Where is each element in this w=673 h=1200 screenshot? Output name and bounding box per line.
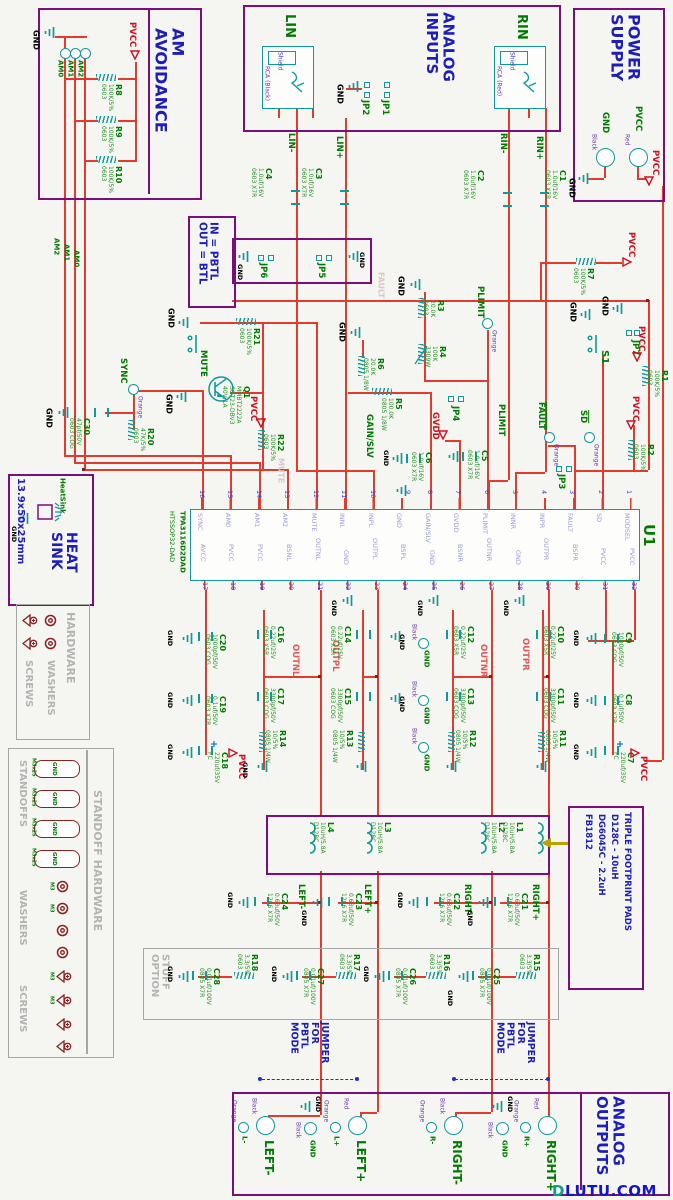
gnd-symbol: [586, 694, 597, 707]
gnd-label: GND: [241, 762, 248, 778]
gnd-symbol: [612, 302, 623, 315]
gnd-symbol: [536, 760, 547, 773]
screw-icon: [22, 614, 38, 627]
component-label: R1410/5% 0805 1/4W: [272, 730, 287, 763]
gnd-symbol: [58, 406, 69, 419]
gnd-label: GND: [358, 252, 365, 268]
jp3-label: JP3: [556, 474, 565, 489]
m3-label: M3: [48, 972, 53, 980]
capacitor-symbol: [291, 190, 300, 205]
jp2-label: JP2: [360, 100, 369, 115]
gnd-label: GND: [396, 892, 403, 908]
jumper-dot: [452, 1077, 456, 1081]
gnd-jack[interactable]: [496, 1122, 509, 1135]
gvdd-arrow: [438, 430, 448, 440]
component-label: R153.3/5% 0603: [526, 954, 541, 975]
gnd-symbol: [428, 594, 439, 607]
net-left-p: LEFT+: [362, 884, 371, 914]
u1-pin-name: AM1: [253, 513, 260, 527]
ghost-fault: FAULT: [376, 272, 385, 298]
gnd-symbol: [578, 172, 589, 185]
gnd-label: GND: [446, 990, 453, 1006]
u1-pin-number: 29: [544, 582, 551, 590]
u1-pin-name: GND: [395, 513, 402, 528]
orange-note: Orange: [512, 1100, 518, 1122]
net-rin-p: RIN+: [534, 136, 543, 160]
component-label: C160.22uf/25V 0603 X5R: [270, 626, 285, 659]
net-pvcc: PVCC: [626, 232, 635, 257]
m3x25-label: M3x25: [30, 818, 35, 837]
gnd-testpoint[interactable]: [418, 695, 429, 706]
resistor-symbol: [372, 388, 392, 395]
l-minus-testpoint[interactable]: [238, 1122, 249, 1133]
r-minus-testpoint[interactable]: [426, 1122, 437, 1133]
orange-note: Orange: [322, 1100, 328, 1122]
net-gainslv: GAIN/SLV: [364, 414, 373, 458]
component-label: R8100K/5% 0603: [108, 84, 123, 111]
red-note: Red: [532, 1098, 538, 1109]
analog-outputs-title: ANALOG OUTPUTS: [594, 1096, 626, 1175]
jp7-pin[interactable]: [626, 330, 632, 336]
u1-pin-name: GND: [514, 550, 521, 565]
am2-pin[interactable]: [80, 48, 91, 59]
gnd-jack[interactable]: [304, 1122, 317, 1135]
u1-pin-number: 18: [229, 582, 236, 590]
u1-pin-name: OUTNL: [314, 538, 321, 560]
gnd-jack-label: GND: [600, 112, 609, 133]
gnd-symbol: [410, 278, 421, 291]
component-label: C220.68uf/50V 1206 X7R: [446, 893, 461, 926]
net-am1: AM1: [66, 60, 74, 77]
jp6-label: JP6: [258, 263, 267, 278]
u1-pin-name: GAIN/SLV: [424, 513, 431, 543]
watermark-rest: LUTU.COM: [565, 1182, 657, 1200]
u1-pin-name: AM0: [224, 513, 231, 527]
schematic-canvas: AM AVOIDANCE GND AM0 AM1 AM2 PVCC R8100K…: [0, 0, 673, 1200]
gnd-label: GND: [398, 634, 405, 650]
gnd-label: GND: [396, 276, 405, 296]
gnd-label: GND: [572, 692, 579, 708]
screw-icon: [56, 994, 72, 1007]
u1-pin-number: 26: [458, 582, 465, 590]
washers-label: WASHERS: [44, 660, 55, 716]
u1-pin-name: OUTNR: [485, 538, 492, 561]
jp5-pin[interactable]: [316, 255, 322, 261]
washer-icon: [56, 902, 69, 915]
sd-testpoint[interactable]: [584, 432, 595, 443]
u1-pin-name: INNR: [509, 513, 516, 529]
jp2-pin[interactable]: [364, 82, 370, 88]
component-label: C173300pf/50V 0603 COG: [270, 688, 285, 723]
gnd-label: GND: [330, 600, 337, 616]
gnd-banana-jack[interactable]: [596, 148, 615, 167]
gnd-symbol: [182, 746, 193, 759]
component-label: C51.0uf/16V 0603 X7R: [474, 450, 489, 479]
component-label: R9100K/5% 0603: [108, 126, 123, 153]
black-note: Black: [590, 134, 596, 150]
gnd-symbol: [178, 316, 189, 329]
component-label: R21100K/5% 0603: [246, 328, 261, 355]
net-am2: AM2: [52, 238, 60, 255]
gnd-label: GND: [500, 1140, 508, 1157]
pvcc-arrow: [644, 176, 654, 186]
gnd-label: GND: [31, 30, 40, 50]
gnd-symbol: [350, 326, 361, 339]
screw-icon: [56, 1018, 72, 1031]
jp6-pin[interactable]: [258, 255, 264, 261]
gnd-symbol: [458, 970, 469, 983]
u1-pin-number: 30: [573, 582, 580, 590]
black-note: Black: [410, 681, 416, 697]
washer-icon: [56, 880, 69, 893]
gnd-symbol: [238, 896, 249, 909]
gnd-label: GND: [568, 302, 577, 322]
gnd-label: GND: [567, 178, 576, 198]
gnd-label: GND: [382, 450, 389, 466]
component-label: C240.68uf/50V 1206 X7R: [274, 893, 289, 926]
tfp-line4: FB1812: [583, 814, 592, 850]
u1-pin-number: 32: [630, 582, 637, 590]
component-label: R163.3/5% 0603: [436, 954, 451, 975]
net-r-plus: R+: [522, 1136, 530, 1147]
u1-part: TPA3116D2DAD: [178, 511, 186, 573]
gnd-label: GND: [466, 910, 473, 926]
sync-testpoint[interactable]: [128, 384, 139, 395]
u1-pin-name: BSPR: [571, 544, 578, 561]
net-outpr: OUTPR: [520, 638, 529, 671]
u1-pin-number: 7: [454, 490, 461, 494]
ghost-mute: MUTE: [276, 458, 285, 483]
screw-icon: [22, 637, 38, 650]
resistor-symbol: [96, 156, 116, 163]
net-pvcc: PVCC: [636, 326, 645, 351]
rca-contact-icon: [288, 70, 306, 96]
jumper-dot: [546, 1077, 550, 1081]
gnd-symbol: [408, 896, 419, 909]
net-pvcc: PVCC: [650, 150, 659, 175]
component-label: R10100K/5% 0603: [108, 166, 123, 193]
jumper-dot: [258, 1077, 262, 1081]
r-plus-testpoint[interactable]: [520, 1122, 531, 1133]
u1-pin-name: AVCC: [199, 544, 206, 562]
screws-label: SCREWS: [22, 660, 33, 707]
rca-black-label: RCA (Black): [263, 66, 269, 101]
polarity-plus: [616, 740, 624, 748]
u1-pin-name: GND: [428, 550, 435, 565]
gnd-label: GND: [226, 892, 233, 908]
gnd-label: GND: [236, 264, 243, 280]
gnd-label: GND: [270, 966, 277, 982]
u1-pin-name: MODSEL: [623, 513, 630, 541]
u1-pin-name: FAULT: [566, 513, 573, 532]
u1-pin-name: INPL: [367, 513, 374, 527]
u1-pin-number: 17: [201, 582, 208, 590]
red-note: Red: [623, 134, 629, 145]
gnd-symbol: [176, 390, 187, 403]
component-label: R320.0K 0603: [430, 300, 445, 317]
component-label: C190.1uf/50V 0603 X7R: [212, 696, 227, 725]
net-lin-n: LIN-: [286, 133, 295, 152]
component-label: C133300pf/50V 0603 COG: [460, 688, 475, 723]
component-label: C210.68uf/50V 1206 X7R: [514, 893, 529, 926]
orange-note: Orange: [230, 1100, 236, 1122]
u1-pin-name: GND: [342, 550, 349, 565]
shield-label: Shield: [276, 52, 282, 70]
pvcc-jack-label: PVCC: [633, 106, 642, 131]
gnd-symbol: [446, 760, 457, 773]
u1-pin-name: GVDD: [452, 513, 459, 533]
u1-pin-number: 31: [601, 582, 608, 590]
gnd-label: GND: [164, 394, 173, 414]
component-label: R5100.0K 0805 1/8W: [388, 398, 403, 431]
pbtl-jumper-wire: [262, 1079, 358, 1080]
gnd-symbol: [178, 970, 189, 983]
u1-pin-number: 9: [404, 490, 411, 494]
gnd-symbol: [580, 308, 591, 321]
jumper-dot: [355, 1077, 359, 1081]
jp5-pin[interactable]: [326, 255, 332, 261]
net-plimit: PLIMIT: [475, 286, 484, 318]
standoff-icon: [34, 820, 80, 838]
u1-pin-number: 15: [226, 490, 233, 498]
component-label: R22100K/5% 0603: [270, 434, 285, 461]
pbtl-jumper-note: JUMPER FOR PBTL MODE: [494, 1022, 535, 1063]
washer-icon: [44, 637, 57, 650]
u1-pin-name: BSPL: [399, 544, 406, 560]
component-label: R2047K/5% 0603: [140, 428, 155, 451]
gnd-symbol: [492, 1100, 503, 1113]
gnd-label: GND: [50, 792, 56, 806]
washer-icon: [56, 924, 69, 937]
u1-ref: U1: [641, 524, 657, 547]
jp4-pin[interactable]: [458, 396, 464, 402]
u1-pin-number: 3: [568, 490, 575, 494]
pvcc-arrow: [622, 257, 632, 267]
u1-pin-number: 6: [483, 490, 490, 494]
u1-pin-number: 21: [316, 582, 323, 590]
jp1-pin[interactable]: [384, 82, 390, 88]
component-label: R1110/5% 0805 1/4W: [552, 730, 567, 763]
jp1-label: JP1: [380, 100, 389, 115]
jp4-label: JP4: [450, 406, 459, 421]
gnd-testpoint[interactable]: [418, 742, 429, 753]
jp6-pin[interactable]: [268, 255, 274, 261]
component-label: R1100K/5% 0603: [654, 370, 669, 397]
jp4-pin[interactable]: [448, 396, 454, 402]
gnd-symbol: [238, 250, 249, 263]
u1-pin-number: 19: [258, 582, 265, 590]
gnd-label: GND: [362, 966, 369, 982]
screws-label: SCREWS: [16, 985, 27, 1032]
net-fault: FAULT: [536, 402, 545, 430]
capacitor-symbol: [340, 190, 349, 205]
right-minus-label: RIGHT-: [450, 1140, 463, 1185]
u1-pin-name: MUTE: [310, 513, 317, 531]
u1-pin-number: 20: [287, 582, 294, 590]
gnd-symbol: [356, 760, 367, 773]
jp3-pin[interactable]: [556, 466, 562, 472]
m3x25-label: M3x25: [30, 758, 35, 777]
gnd-label: GND: [422, 754, 430, 771]
u1-pin-number: 8: [426, 490, 433, 494]
resistor-symbol: [96, 116, 116, 123]
component-label: C18220uf/35V FC: [214, 752, 229, 783]
u1-pin-name: PVCC: [227, 544, 234, 561]
component-label: C260.01uf/100V 0805 X7R: [402, 968, 417, 1005]
u1-pin-number: 12: [312, 490, 319, 498]
heatsink-size: 13.9x50x25mm: [14, 478, 25, 564]
triple-footprint-block: [568, 806, 644, 990]
m3-label: M3: [48, 904, 53, 912]
u1-pin-number: 10: [369, 490, 376, 498]
m3-label: M3: [48, 996, 53, 1004]
mute-button-label: MUTE: [198, 350, 207, 377]
right-plus-jack[interactable]: [538, 1116, 557, 1135]
u1-pin-number: 13: [283, 490, 290, 498]
u1-package: HTSSOP32-DAD: [168, 511, 175, 562]
rca-red-label: RCA (Red): [495, 66, 501, 96]
pbtl-jumper-wire: [455, 1079, 548, 1080]
net-pvcc: PVCC: [638, 756, 647, 781]
u1-pin-name: OUTPR: [542, 538, 549, 560]
gnd-label: GND: [44, 408, 53, 428]
left-plus-jack[interactable]: [348, 1116, 367, 1135]
gnd-label: GND: [50, 852, 56, 866]
component-label: R173.3/5% 0603: [346, 954, 361, 975]
component-label: C11.0uf/16V 0603 X7R: [552, 170, 567, 199]
net-pvcc: PVCC: [127, 22, 136, 47]
component-label: C80.1uf/50V 0603 X7R: [618, 694, 633, 723]
net-left-n: LEFT-: [296, 884, 305, 909]
orange-note: Orange: [136, 396, 142, 418]
gnd-symbol: [448, 450, 459, 463]
washer-icon: [56, 946, 69, 959]
fault-testpoint[interactable]: [544, 432, 555, 443]
net-right-p: RIGHT+: [530, 884, 539, 921]
component-label: C280.01uf/100V 0805 X7R: [206, 968, 221, 1005]
net-rin-n: RIN-: [498, 133, 507, 153]
capacitor-symbol: [503, 192, 512, 207]
left-minus-jack[interactable]: [256, 1116, 275, 1135]
u1-pin-name: PVCC: [599, 548, 606, 565]
gnd-label: GND: [166, 966, 173, 982]
component-label: R183.3/5% 0603: [244, 954, 259, 975]
pvcc-banana-jack[interactable]: [629, 148, 648, 167]
am-avoidance-title: AM AVOIDANCE: [152, 28, 187, 133]
tfp-line1: TRIPLE FOOTPRINT PADS: [622, 812, 631, 931]
orange-note: Orange: [552, 444, 558, 466]
plimit-testpoint[interactable]: [482, 318, 493, 329]
resistor-symbol: [358, 732, 365, 752]
u1-pin-name: INNL: [338, 513, 345, 528]
net-outnr: OUTNR: [478, 644, 487, 678]
screw-icon: [56, 970, 72, 983]
u1-pin-name: PVCC: [256, 544, 263, 561]
right-minus-jack[interactable]: [444, 1116, 463, 1135]
net-am2: AM2: [76, 60, 84, 77]
orange-note: Orange: [490, 330, 496, 352]
gnd-label: GND: [337, 322, 346, 342]
u1-pin-number: 4: [540, 490, 547, 494]
capacitor-symbol: [356, 630, 371, 639]
left-minus-label: LEFT-: [262, 1140, 275, 1175]
u1-pin-number: 23: [373, 582, 380, 590]
u1-pin-name: BSNL: [285, 544, 292, 561]
heatsink-title: HEAT SINK: [48, 532, 78, 573]
gnd-symbol: [348, 80, 359, 93]
u1-pin-number: 14: [255, 490, 262, 498]
u1-pin-number: 27: [487, 582, 494, 590]
divider: [148, 10, 150, 194]
net-r-minus: R-: [428, 1136, 436, 1144]
gnd-symbol: [282, 970, 293, 983]
u1-pin-number: 5: [511, 490, 518, 494]
rin-label: RIN: [514, 14, 528, 40]
net-am1: AM1: [62, 244, 70, 261]
component-label: C113300pf/50V 0603 COG: [550, 688, 565, 723]
orange-note: Orange: [418, 1100, 424, 1122]
gnd-symbol: [586, 632, 597, 645]
component-label: C3047pf/50V 0603 COG: [76, 418, 91, 449]
black-note: Black: [410, 728, 416, 744]
u1-pin-name: PLIMIT: [481, 513, 488, 534]
standoff-icon: [34, 790, 80, 808]
u1-pin-number: 25: [430, 582, 437, 590]
pvcc-arrow: [256, 418, 266, 428]
footprint-arrow-head: [540, 837, 552, 849]
standoffs-label: STANDOFFS: [16, 760, 27, 827]
gnd-label: GND: [166, 692, 173, 708]
gnd-testpoint[interactable]: [418, 638, 429, 649]
gnd-label: GND: [335, 84, 344, 104]
shield-label: Shield: [508, 52, 514, 70]
resistor-symbol: [576, 258, 596, 265]
gnd-symbol: [300, 1100, 311, 1113]
divider: [86, 750, 88, 1054]
screw-icon: [56, 1040, 72, 1053]
resistor-symbol: [236, 318, 256, 325]
gnd-label: GND: [600, 296, 609, 316]
net-outnl: OUTNL: [290, 644, 299, 676]
lin-label: LIN: [282, 14, 296, 38]
gnd-symbol: [257, 760, 268, 773]
jp2-pin[interactable]: [364, 92, 370, 98]
standoff-title: STANDOFF HARDWARE: [91, 790, 103, 931]
gnd-symbol: [44, 26, 55, 39]
jp3-pin[interactable]: [566, 466, 572, 472]
pvcc-arrow: [626, 420, 636, 430]
gnd-label: GND: [572, 630, 579, 646]
jp1-pin[interactable]: [384, 92, 390, 98]
m3-label: M3: [48, 882, 53, 890]
component-label: C100.22uf/25V 0603 X5R: [550, 626, 565, 659]
gnd-label: GND: [314, 1096, 321, 1112]
gnd-label: GND: [300, 910, 307, 926]
pvcc-arrow: [130, 50, 140, 60]
u1-pin-number: 16: [198, 490, 205, 498]
pbtl-jumper-note: JUMPER FOR PBTL MODE: [288, 1022, 329, 1063]
component-label: C250.01uf/100V 0805 X7R: [486, 968, 501, 1005]
power-supply-title: POWER SUPPLY: [608, 14, 643, 81]
gnd-label: GND: [398, 696, 405, 712]
black-note: Black: [250, 1098, 256, 1114]
u1-pin-name: SYNC: [196, 513, 203, 531]
left-plus-label: LEFT+: [354, 1140, 367, 1182]
pvcc-arrow: [632, 352, 642, 362]
component-label: C61.0uf/16V 0603 X7R: [418, 452, 433, 481]
l-plus-testpoint[interactable]: [330, 1122, 341, 1133]
gnd-symbol: [392, 452, 403, 465]
